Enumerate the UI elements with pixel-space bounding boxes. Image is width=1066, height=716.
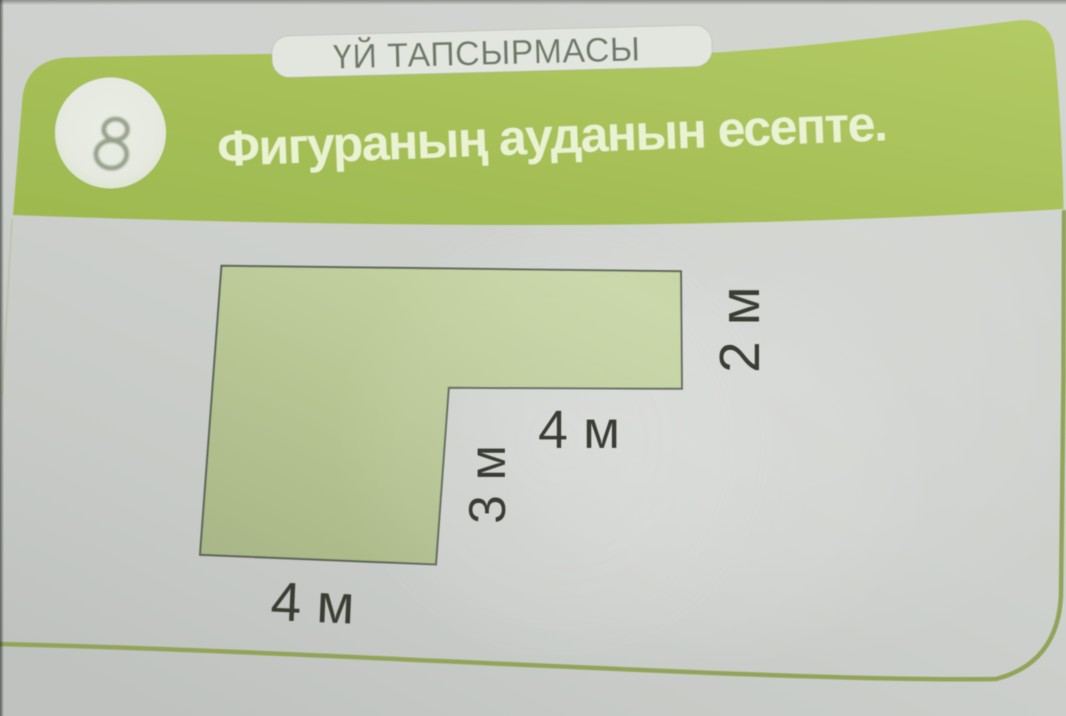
svg-text:2 м: 2 м — [708, 286, 772, 373]
svg-text:ҮЙ ТАПСЫРМАСЫ: ҮЙ ТАПСЫРМАСЫ — [333, 30, 641, 76]
svg-text:4 м: 4 м — [538, 400, 620, 460]
svg-text:4 м: 4 м — [269, 570, 355, 636]
svg-text:3 м: 3 м — [459, 445, 517, 524]
